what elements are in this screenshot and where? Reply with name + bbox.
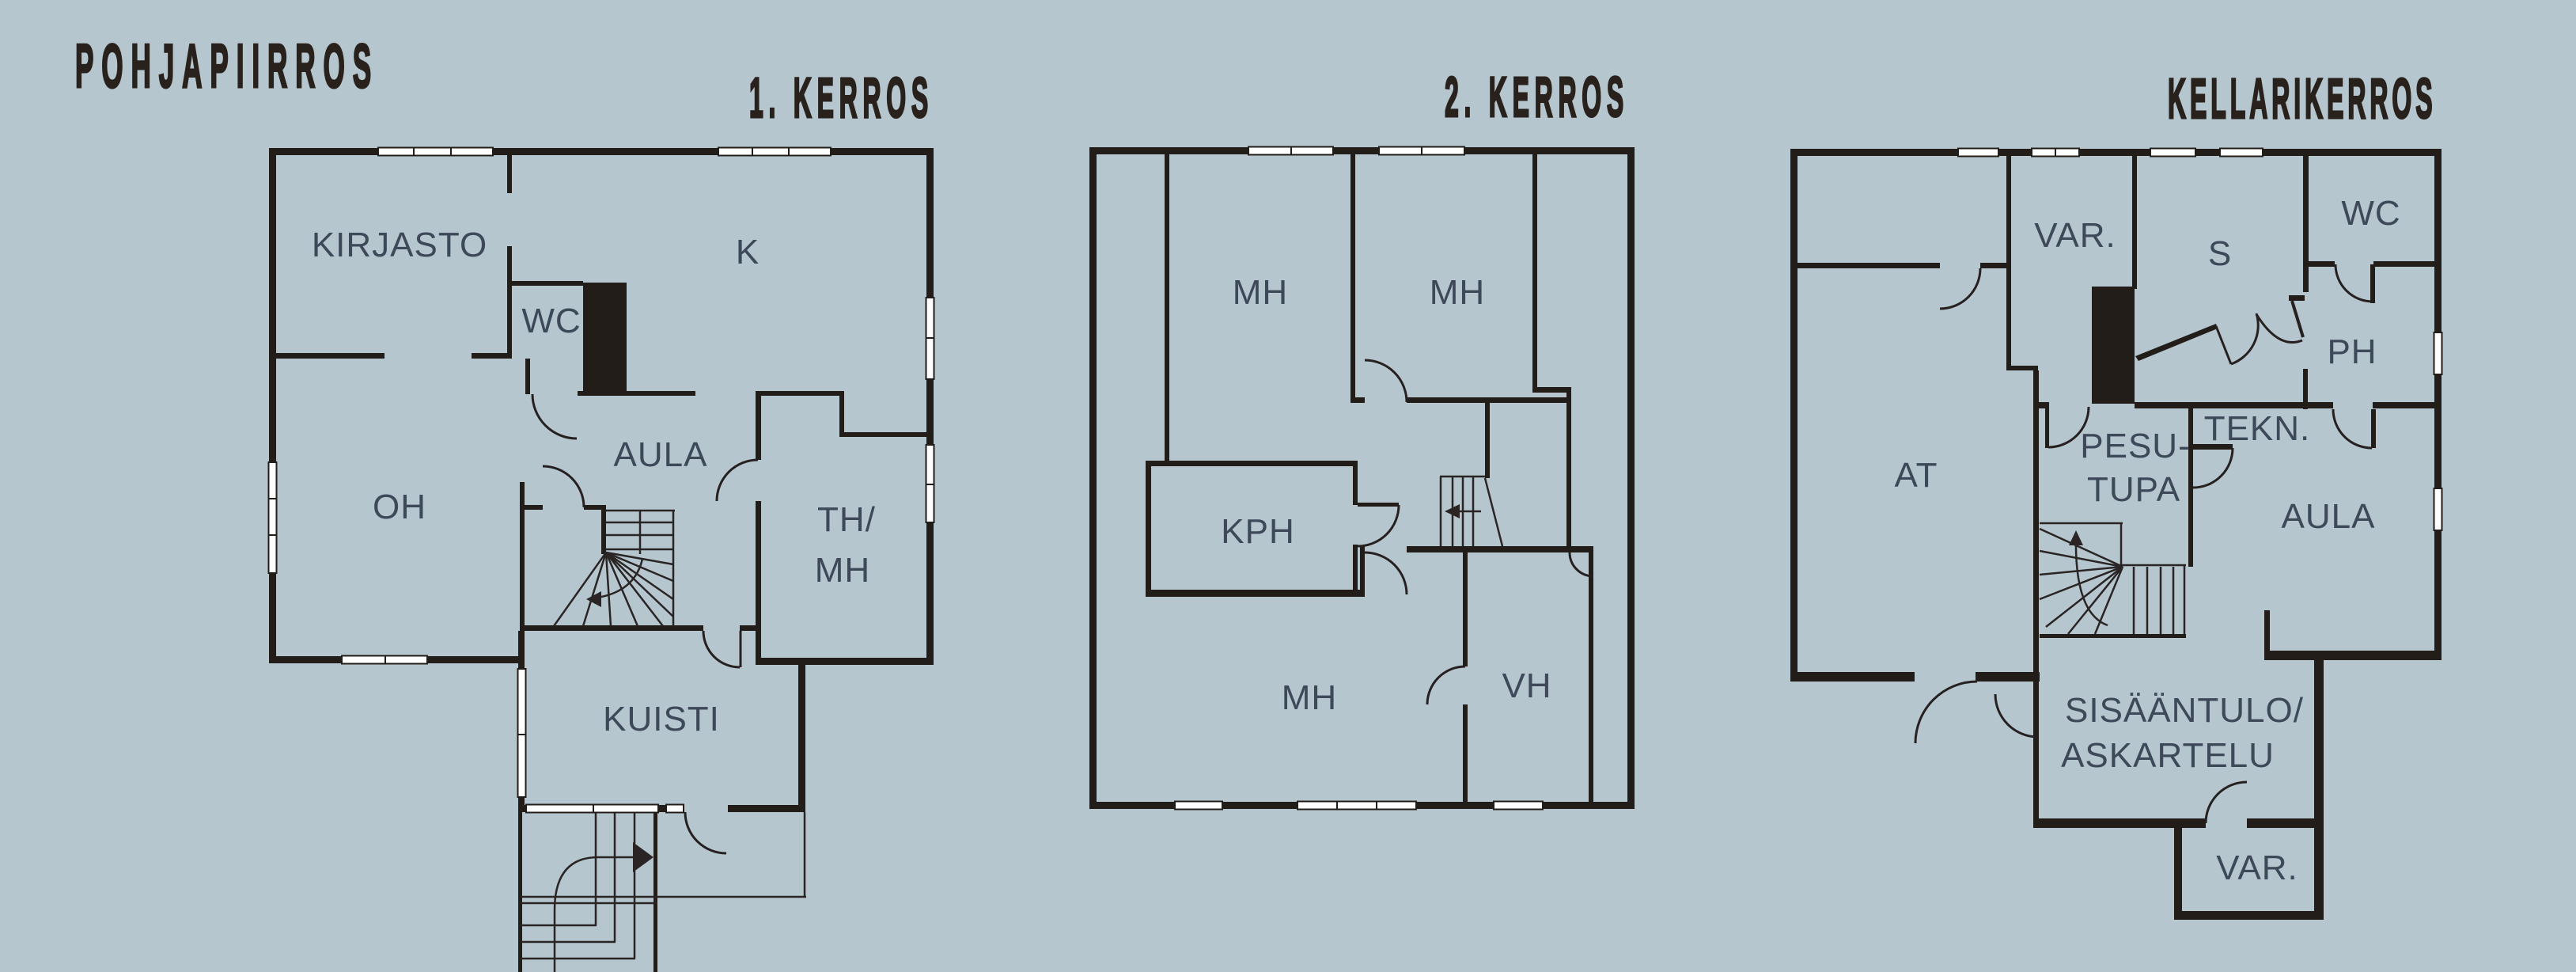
svg-text:VAR.: VAR.: [2034, 216, 2116, 255]
svg-text:KPH: KPH: [1221, 512, 1294, 551]
svg-text:VH: VH: [1502, 666, 1551, 705]
svg-text:KIRJASTO: KIRJASTO: [312, 226, 487, 264]
svg-text:1. KERROS: 1. KERROS: [749, 66, 934, 130]
svg-text:TUPA: TUPA: [2087, 470, 2180, 509]
svg-text:MH: MH: [815, 551, 870, 590]
svg-text:POHJAPIIRROS: POHJAPIIRROS: [75, 31, 379, 101]
svg-text:S: S: [2208, 234, 2232, 273]
svg-text:MH: MH: [1430, 273, 1485, 312]
svg-text:OH: OH: [373, 488, 426, 526]
svg-text:MH: MH: [1282, 678, 1337, 717]
svg-text:KUISTI: KUISTI: [603, 700, 720, 738]
svg-text:TEKN.: TEKN.: [2204, 409, 2311, 448]
svg-text:KELLARIKERROS: KELLARIKERROS: [2168, 67, 2436, 131]
svg-text:SISÄÄNTULO/: SISÄÄNTULO/: [2065, 691, 2304, 730]
svg-text:AULA: AULA: [2282, 497, 2376, 536]
svg-text:TH/: TH/: [817, 500, 876, 539]
svg-text:WC: WC: [2341, 194, 2400, 233]
svg-text:ASKARTELU: ASKARTELU: [2061, 736, 2275, 775]
svg-text:2. KERROS: 2. KERROS: [1445, 66, 1629, 129]
svg-text:VAR.: VAR.: [2216, 849, 2298, 887]
svg-text:PESU-: PESU-: [2080, 427, 2190, 465]
svg-text:MH: MH: [1233, 273, 1288, 312]
svg-text:WC: WC: [521, 302, 581, 340]
svg-text:AULA: AULA: [614, 435, 708, 474]
svg-text:PH: PH: [2327, 332, 2377, 371]
svg-text:AT: AT: [1895, 456, 1938, 495]
svg-text:K: K: [736, 233, 760, 271]
